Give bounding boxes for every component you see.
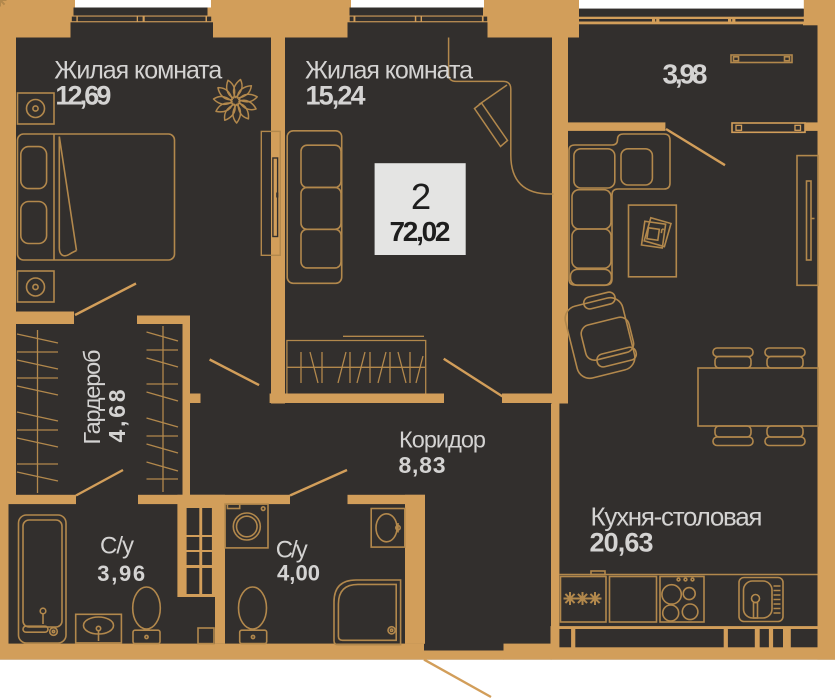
svg-text:2: 2 <box>411 176 431 217</box>
svg-text:С/у: С/у <box>276 536 308 563</box>
svg-text:4,00: 4,00 <box>277 561 320 586</box>
svg-text:Гардероб: Гардероб <box>79 350 105 445</box>
svg-text:12,69: 12,69 <box>55 81 111 111</box>
svg-text:4,68: 4,68 <box>104 389 130 442</box>
svg-text:3,96: 3,96 <box>97 561 145 586</box>
svg-text:15,24: 15,24 <box>306 81 366 111</box>
svg-text:8,83: 8,83 <box>399 452 446 478</box>
svg-text:С/у: С/у <box>100 533 134 560</box>
svg-text:20,63: 20,63 <box>590 528 654 558</box>
svg-text:3,98: 3,98 <box>663 59 708 90</box>
svg-text:Коридор: Коридор <box>399 427 486 453</box>
svg-text:72,02: 72,02 <box>390 216 451 247</box>
